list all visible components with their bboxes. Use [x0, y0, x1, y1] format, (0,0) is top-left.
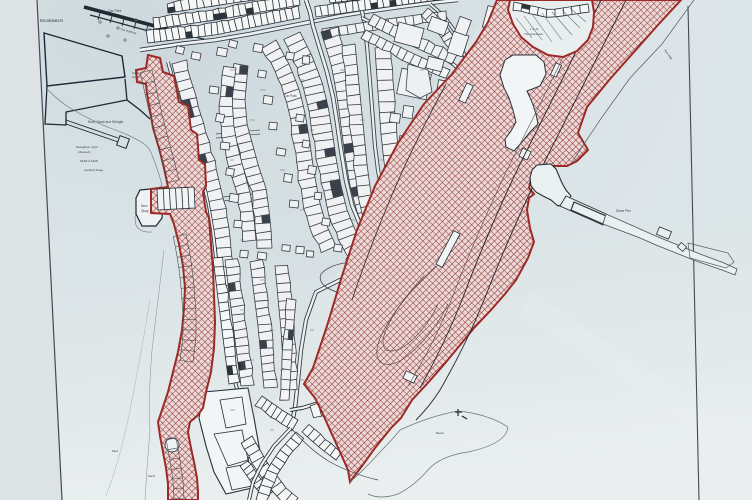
- svg-text:MHW & MLW: MHW & MLW: [80, 159, 98, 163]
- svg-text:1 to 21: 1 to 21: [530, 27, 539, 31]
- svg-text:Navigation Light: Navigation Light: [76, 145, 98, 149]
- svg-text:Beach: Beach: [436, 431, 444, 435]
- svg-text:House: House: [132, 75, 141, 79]
- svg-text:Mud: Mud: [112, 449, 118, 453]
- svg-text:The Quantocks: The Quantocks: [524, 32, 544, 36]
- svg-text:Sand: Sand: [148, 474, 155, 478]
- svg-text:(disused): (disused): [78, 150, 90, 154]
- svg-text:Car Park: Car Park: [108, 9, 122, 13]
- svg-text:Breakwaters: Breakwaters: [40, 18, 63, 23]
- svg-text:Quay: Quay: [141, 209, 149, 213]
- svg-text:Car Park: Car Park: [284, 94, 297, 98]
- svg-text:Stone Pier: Stone Pier: [616, 209, 632, 213]
- svg-text:Landing Stage: Landing Stage: [84, 168, 104, 172]
- svg-text:New: New: [141, 204, 148, 208]
- svg-text:Mud, Sand and Shingle: Mud, Sand and Shingle: [88, 120, 123, 124]
